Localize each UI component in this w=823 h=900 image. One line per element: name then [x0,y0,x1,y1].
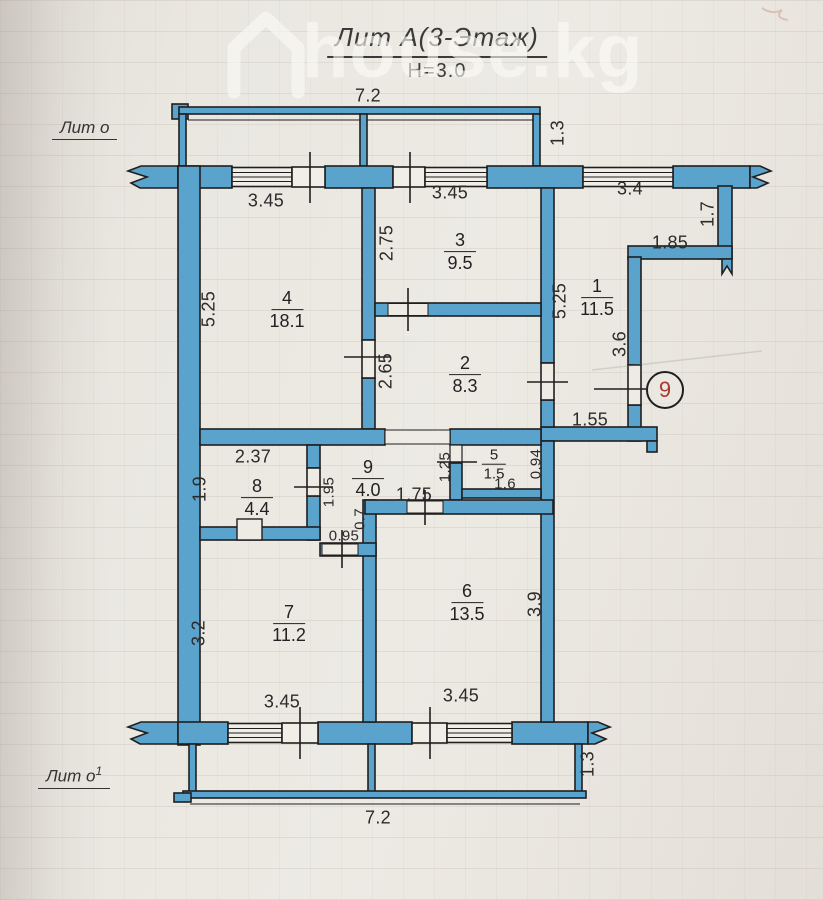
dim-win-bottom-right: 3.45 [443,686,479,707]
balcony-bottom-label: Лит о1 [38,764,110,789]
door-room4-room2 [362,340,375,378]
room-6-label: 6 13.5 [449,582,484,624]
room-8-label: 8 4.4 [241,477,273,519]
room8-niche [237,519,262,540]
door-hall-room9 [385,430,450,444]
dim-corr-bottom: 1.55 [572,410,608,431]
room-2-label: 2 8.3 [449,354,481,396]
title-litera: Лит А(3-Этаж) [327,22,547,58]
dim-step-height: 1.7 [698,201,719,227]
room-1-label: 1 11.5 [580,277,614,319]
door-room8 [307,468,320,496]
wall-bottom [128,722,610,744]
room-5-label: 5 1.5 [482,448,506,483]
dim-room1-height: 5.25 [550,283,571,319]
dim-win-top-left: 3.45 [248,191,284,212]
wall-corridor-bottom [541,427,657,452]
window-bottom-right [412,723,512,743]
room-3-label: 3 9.5 [444,231,476,273]
apartment-number: 9 [659,377,671,403]
dim-room3-depth: 2.75 [377,225,398,261]
dim-room8-depth: 1.9 [190,476,211,502]
balcony-bottom [174,744,586,804]
dim-wc-left: 1.25 [437,452,454,482]
wall-spine-left [362,188,376,722]
dim-room8-width: 2.37 [235,447,271,468]
dim-hall-wall: 1.95 [321,477,338,507]
apartment-number-badge: 9 [646,371,684,409]
balcony-top-label: Лит о [52,118,117,140]
dim-entry-wall: 3.6 [610,331,631,357]
dim-win-bottom-left: 3.45 [264,692,300,713]
dim-room7-height: 3.2 [189,620,210,646]
floorplan-scan: Лит А(3-Этаж) Н=3.0 Лит о Лит о1 7.2 1.3… [0,0,823,900]
dim-top-balcony-depth: 1.3 [548,120,569,146]
floorplan-drawing [0,0,823,900]
title-ceiling-height: Н=3.0 [327,60,547,83]
drawing-title: Лит А(3-Этаж) Н=3.0 [327,22,547,83]
dim-room6-height: 3.9 [525,591,546,617]
dim-room7-door: 0.95 [329,528,359,545]
room-7-label: 7 11.2 [272,603,306,645]
balcony-top [172,104,540,166]
entry-door-opening [628,365,641,405]
dim-room2-depth: 2.65 [376,353,397,389]
room-9-label: 9 4.0 [352,458,384,500]
wall-left [178,166,200,745]
wall-room6-top [365,500,553,514]
room-4-label: 4 18.1 [269,289,304,331]
window-bottom-left [228,723,318,743]
dim-step-width: 1.85 [652,233,688,254]
dim-room6-door: 1.75 [396,485,432,506]
dim-wc-right: 0.94 [528,449,545,479]
dim-top-width: 7.2 [355,86,381,107]
window-top-left [232,167,325,187]
wall-middle [200,429,541,445]
dim-bottom-balcony-depth: 1.3 [578,751,599,777]
dim-room4-height: 5.25 [199,291,220,327]
dim-corr-top: 3.4 [617,179,643,200]
door-room7 [322,544,358,555]
dim-win-top-right: 3.45 [432,183,468,204]
dim-bottom-width: 7.2 [365,808,391,829]
